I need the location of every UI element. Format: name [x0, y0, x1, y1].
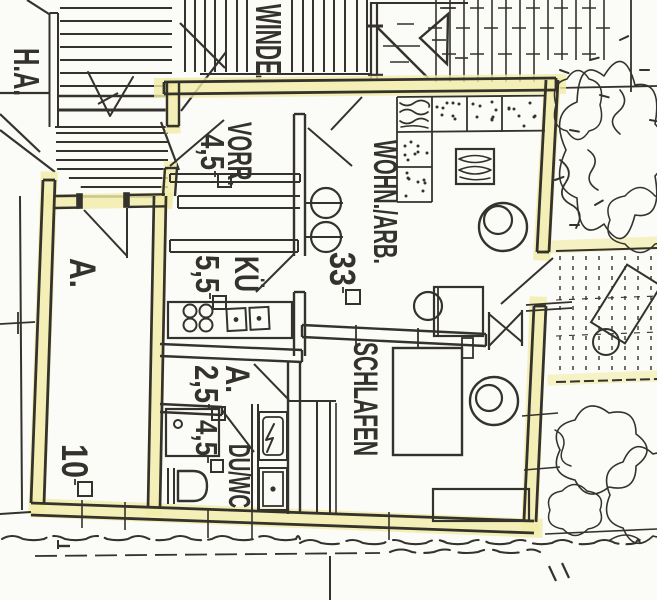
svg-text:4,5: 4,5 — [189, 420, 224, 456]
svg-text:5,5: 5,5 — [189, 255, 226, 293]
svg-text:KÜ: KÜ — [227, 256, 265, 292]
svg-text:A.: A. — [62, 258, 103, 288]
svg-text:2,5: 2,5 — [188, 365, 225, 403]
svg-text:SCHLAFEN: SCHLAFEN — [346, 342, 384, 456]
svg-text:4,5: 4,5 — [194, 134, 231, 170]
svg-text:33: 33 — [322, 252, 363, 286]
svg-text:10: 10 — [54, 444, 95, 478]
svg-text:H.A.: H.A. — [6, 48, 47, 96]
svg-text:WINDE.: WINDE. — [248, 4, 289, 80]
